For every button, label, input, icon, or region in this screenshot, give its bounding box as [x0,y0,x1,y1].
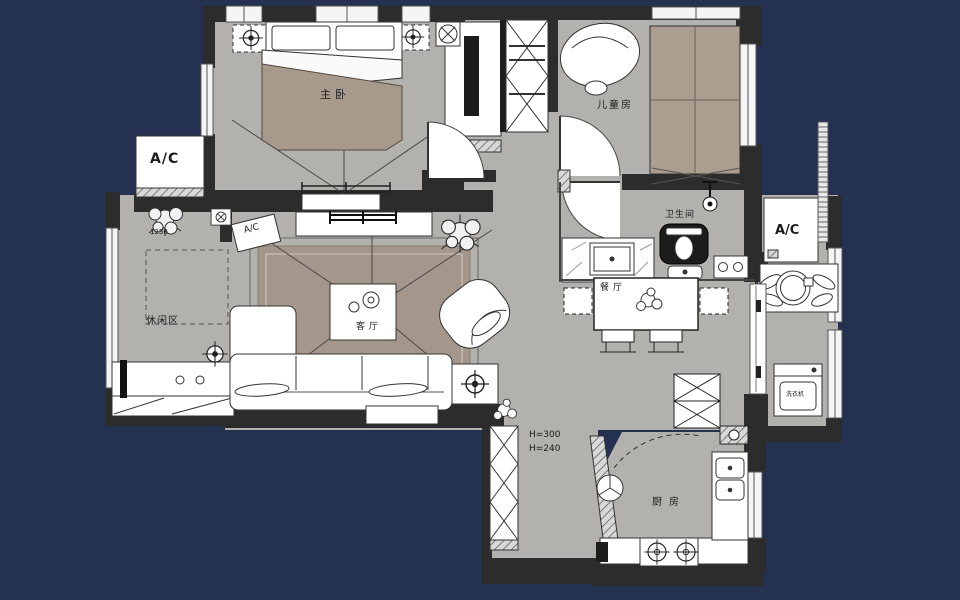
ac-label-left: A/C [150,152,179,166]
height-note-1: H=300 [529,431,561,440]
room-label-kitchen: 厨房 [652,498,686,508]
leisure-desk [112,362,234,396]
room-label-bathroom: 卫生间 [665,211,695,220]
exhaust-fan-icon [597,475,623,501]
height-note-2: H=240 [529,445,561,454]
floor-lamp [120,360,127,398]
wall-hatch-strip [818,122,828,242]
tv-wall-niche [302,194,380,210]
wardrobe [506,20,548,132]
dimension-label: 1250 [150,229,168,236]
leisure-shelf [112,396,234,416]
wash-basin [776,271,810,305]
floor-plan-drawing [0,0,960,600]
bed-pillow [272,26,330,50]
dining-chair-dashed [700,288,728,314]
room-label-kids-room: 儿童房 [597,101,633,111]
bed-pillow [336,26,394,50]
wall-stand [366,406,438,424]
room-label-leisure-area: 休闲区 [146,317,179,327]
dining-chair-dashed [564,288,592,314]
room-label-living-room: 客厅 [356,323,382,332]
room-label-dining-room: 餐厅 [600,284,626,293]
sofa [230,354,452,410]
washer-label: 洗衣机 [786,392,804,398]
ac-label-right: A/C [775,224,799,237]
entry-corridor [490,426,518,550]
floor-plan-canvas: 主卧 儿童房 卫生间 餐厅 客厅 休闲区 厨房 A/C A/C A/C H=30… [0,0,960,600]
shoe-cabinet [490,426,518,546]
room-label-master-bedroom: 主卧 [320,89,350,100]
